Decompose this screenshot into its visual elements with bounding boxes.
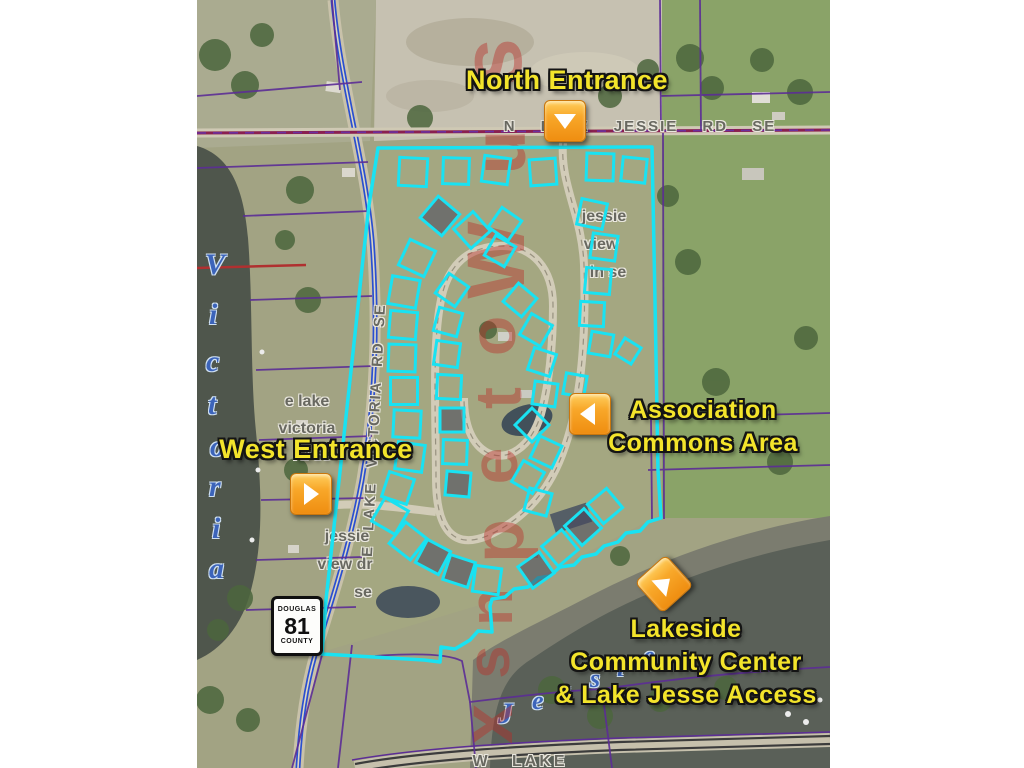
lot-outline (615, 338, 641, 364)
caption-north-entrance: North Entrance (466, 63, 668, 97)
lot-outline (584, 267, 611, 294)
lot-outline (433, 307, 462, 336)
lot-outline (388, 276, 420, 308)
county-sign-bottom: COUNTY (281, 638, 314, 646)
lot-outline (436, 374, 461, 399)
caption-association-line2: Commons Area (608, 427, 798, 460)
lot-outline (529, 158, 557, 186)
lot-outline (518, 552, 554, 588)
caption-association-commons: Association Commons Area (608, 394, 798, 460)
lot-outline (443, 440, 468, 465)
lot-outline (532, 381, 558, 407)
lot-outline (443, 158, 470, 185)
arrow-right-icon (651, 570, 677, 596)
lot-outline (528, 348, 557, 377)
association-commons-marker (569, 393, 611, 435)
development-overlay (0, 0, 1024, 768)
lot-outline (398, 239, 435, 276)
lot-outline (520, 314, 553, 347)
lot-outline (388, 310, 417, 339)
lot-outline (524, 488, 552, 516)
lot-outline (577, 199, 608, 230)
lot-outline (445, 471, 471, 497)
lot-outlines (372, 153, 648, 595)
lot-outline (443, 555, 476, 588)
county-road-81-sign: DOUGLAS 81 COUNTY (271, 596, 323, 656)
caption-lakeside-line2: Community Center (555, 646, 817, 679)
aerial-map-page: N LAKE JESSIE RD SE E LAKE VICTORIA RD S… (0, 0, 1024, 768)
lot-outline (398, 157, 427, 186)
caption-lakeside-line3: & Lake Jesse Access (555, 679, 817, 712)
county-sign-number: 81 (284, 614, 310, 638)
lot-outline (488, 207, 521, 240)
lot-outline (586, 153, 614, 181)
caption-lakeside-access: Lakeside Community Center & Lake Jesse A… (555, 613, 817, 712)
lot-outline (588, 331, 613, 356)
arrow-down-icon (554, 114, 576, 129)
arrow-left-icon (580, 403, 595, 425)
north-entrance-marker (544, 100, 586, 142)
lot-outline (512, 461, 545, 494)
caption-lakeside-line1: Lakeside (555, 613, 817, 646)
lot-outline (503, 283, 537, 317)
caption-association-line1: Association (608, 394, 798, 427)
caption-west-entrance: West Entrance (219, 432, 413, 466)
arrow-right-icon (304, 483, 319, 505)
lot-outline (435, 273, 468, 306)
lot-outline (440, 408, 464, 432)
lot-outline (621, 157, 647, 183)
lot-outline (391, 378, 418, 405)
lot-outline (590, 233, 618, 261)
lot-outline (484, 235, 515, 266)
lot-outline (472, 565, 501, 594)
lot-outline (433, 340, 460, 367)
lot-outline (388, 344, 416, 372)
lot-outline (481, 155, 510, 184)
lot-outline (579, 301, 604, 326)
west-entrance-marker (290, 473, 332, 515)
